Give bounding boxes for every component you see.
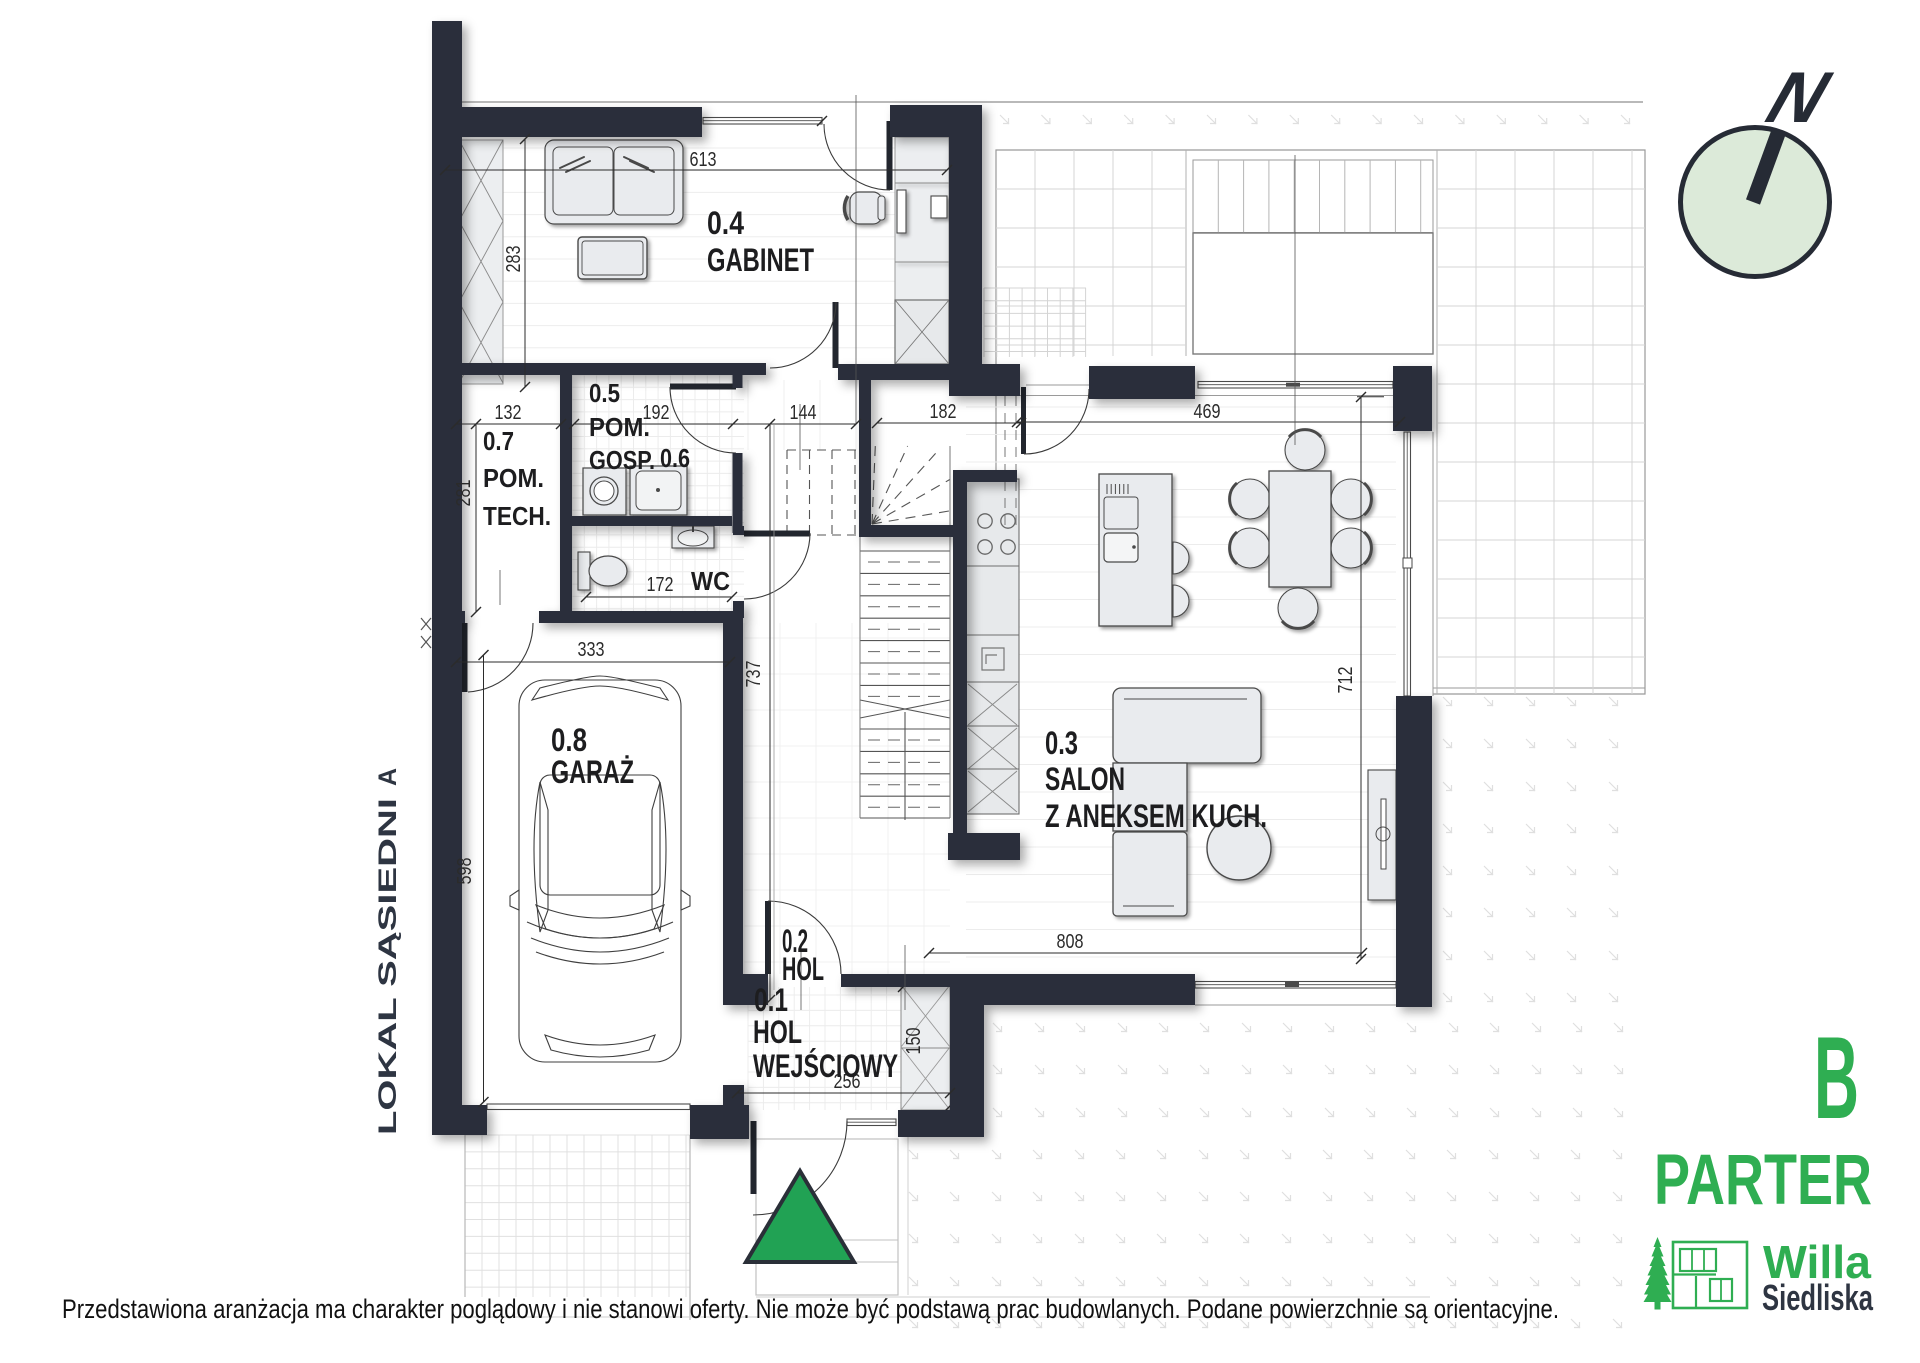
svg-text:0.1: 0.1 <box>754 982 788 1018</box>
svg-text:Przedstawiona aranżacja ma cha: Przedstawiona aranżacja ma charakter pog… <box>62 1294 1559 1324</box>
svg-text:WEJŚCIOWY: WEJŚCIOWY <box>753 1048 898 1084</box>
svg-text:0.7: 0.7 <box>483 426 514 456</box>
svg-text:TECH.: TECH. <box>483 501 551 531</box>
svg-text:A: A <box>374 768 402 786</box>
svg-text:Siedliska: Siedliska <box>1762 1277 1874 1318</box>
svg-text:GOSP.: GOSP. <box>589 445 655 475</box>
svg-text:283: 283 <box>503 246 525 273</box>
svg-text:469: 469 <box>1194 401 1221 423</box>
svg-text:PARTER: PARTER <box>1654 1141 1872 1220</box>
svg-text:0.5: 0.5 <box>589 378 620 408</box>
svg-text:SALON: SALON <box>1045 761 1125 797</box>
svg-text:808: 808 <box>1057 931 1084 953</box>
svg-text:B: B <box>1814 1012 1859 1143</box>
svg-text:0.6: 0.6 <box>660 443 690 473</box>
svg-text:POM.: POM. <box>483 463 544 493</box>
svg-text:598: 598 <box>454 858 476 885</box>
svg-text:GABINET: GABINET <box>707 242 814 278</box>
svg-text:737: 737 <box>743 661 765 688</box>
svg-text:GARAŻ: GARAŻ <box>551 754 634 790</box>
svg-text:Z ANEKSEM KUCH.: Z ANEKSEM KUCH. <box>1045 798 1267 834</box>
svg-text:0.3: 0.3 <box>1045 725 1078 761</box>
svg-text:POM.: POM. <box>589 412 650 442</box>
svg-text:WC: WC <box>691 566 730 596</box>
svg-text:HOL: HOL <box>753 1014 802 1050</box>
svg-text:144: 144 <box>790 402 817 424</box>
svg-text:172: 172 <box>647 574 674 596</box>
svg-text:132: 132 <box>495 402 522 424</box>
svg-text:LOKAL SĄSIEDNI: LOKAL SĄSIEDNI <box>374 798 402 1135</box>
svg-text:150: 150 <box>903 1028 925 1055</box>
svg-text:613: 613 <box>690 149 717 171</box>
svg-text:HOL: HOL <box>782 951 824 987</box>
svg-text:712: 712 <box>1335 667 1357 694</box>
svg-text:182: 182 <box>930 401 957 423</box>
svg-text:281: 281 <box>453 480 475 507</box>
svg-text:0.8: 0.8 <box>551 722 587 758</box>
svg-text:0.4: 0.4 <box>707 205 744 241</box>
svg-text:333: 333 <box>578 639 605 661</box>
